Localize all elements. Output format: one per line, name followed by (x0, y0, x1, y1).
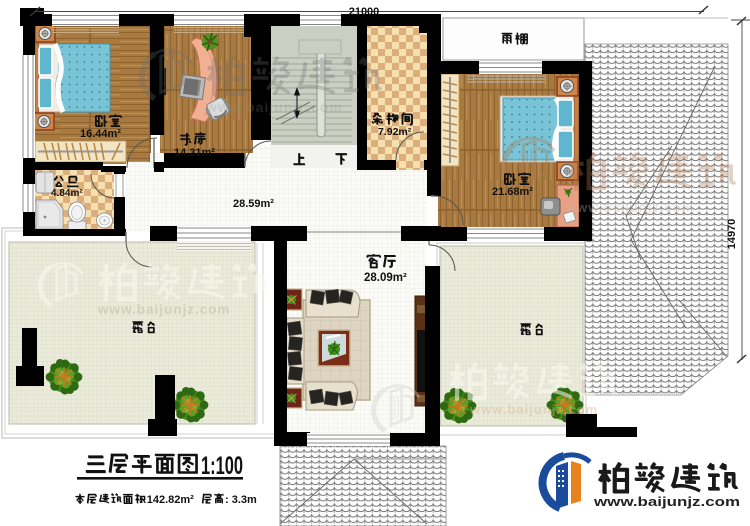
svg-text:21000: 21000 (349, 6, 380, 18)
svg-text:4.84m²: 4.84m² (51, 188, 83, 199)
svg-text:: 142.82m²: : 142.82m² (140, 494, 194, 506)
svg-text:www.baijunjz.com: www.baijunjz.com (205, 99, 343, 115)
svg-text:www.baijunjz.com: www.baijunjz.com (469, 402, 598, 417)
svg-text:www.baijunjz.com: www.baijunjz.com (565, 200, 694, 215)
svg-text:28.09m²: 28.09m² (364, 272, 407, 284)
svg-text:16.44m²: 16.44m² (80, 128, 121, 140)
svg-text:7.92m²: 7.92m² (378, 126, 412, 138)
svg-text:28.59m²: 28.59m² (233, 198, 274, 210)
svg-text:www.baijunjz.com: www.baijunjz.com (97, 302, 231, 317)
svg-text:: 3.3m: : 3.3m (225, 494, 257, 506)
svg-text:www.baijunjz.com: www.baijunjz.com (593, 495, 740, 509)
svg-text:14970: 14970 (726, 219, 738, 250)
svg-text:1:100: 1:100 (201, 452, 243, 480)
svg-text:14.31m²: 14.31m² (174, 147, 215, 159)
svg-text:21.68m²: 21.68m² (492, 186, 533, 198)
